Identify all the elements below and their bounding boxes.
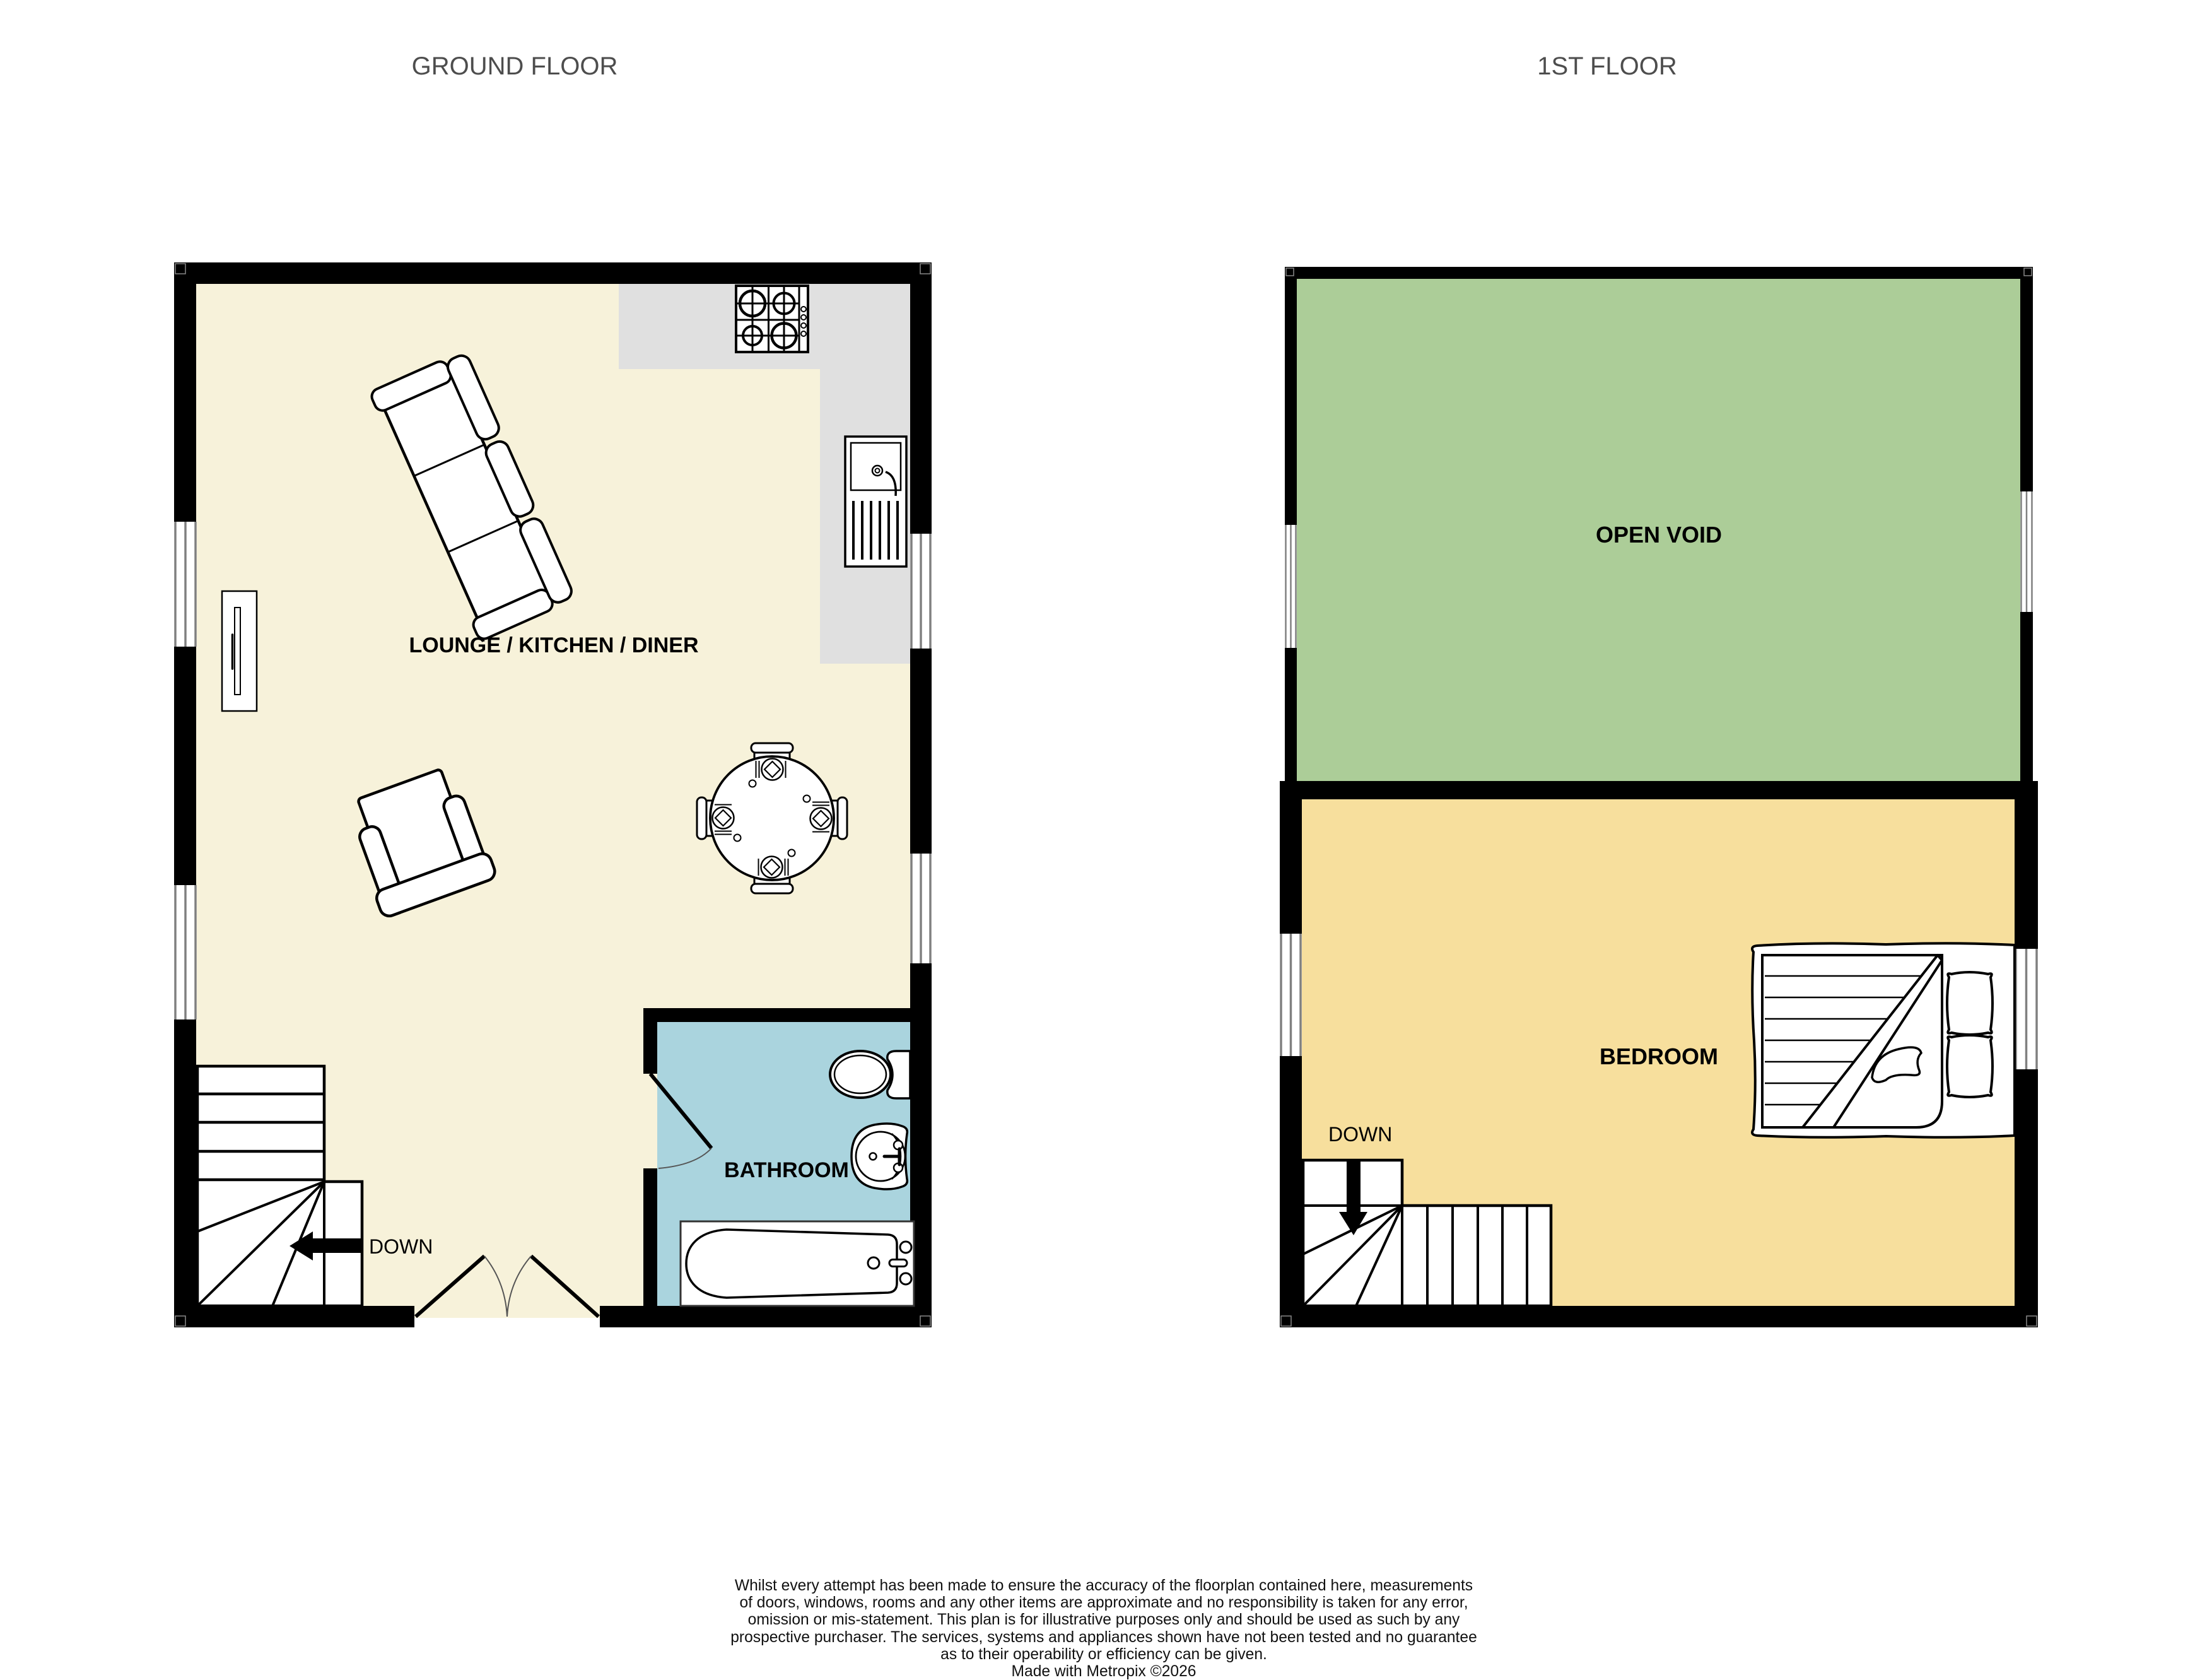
svg-text:OPEN VOID: OPEN VOID: [1596, 522, 1722, 548]
svg-text:omission or mis-statement. Thi: omission or mis-statement. This plan is …: [748, 1611, 1460, 1628]
svg-text:GROUND FLOOR: GROUND FLOOR: [412, 52, 618, 80]
svg-text:as to their operability or eff: as to their operability or efficiency ca…: [940, 1646, 1267, 1663]
svg-text:DOWN: DOWN: [369, 1235, 433, 1258]
svg-text:Made with Metropix ©2026: Made with Metropix ©2026: [1012, 1663, 1197, 1680]
svg-text:BEDROOM: BEDROOM: [1600, 1043, 1718, 1069]
svg-text:BATHROOM: BATHROOM: [724, 1158, 849, 1182]
svg-text:1ST FLOOR: 1ST FLOOR: [1537, 52, 1677, 80]
svg-text:DOWN: DOWN: [1328, 1123, 1392, 1146]
svg-text:LOUNGE / KITCHEN / DINER: LOUNGE / KITCHEN / DINER: [409, 633, 698, 657]
svg-text:of doors, windows, rooms and a: of doors, windows, rooms and any other i…: [739, 1594, 1468, 1611]
svg-text:prospective purchaser. The ser: prospective purchaser. The services, sys…: [730, 1629, 1477, 1646]
svg-text:Whilst every attempt has been: Whilst every attempt has been made to en…: [735, 1577, 1473, 1594]
